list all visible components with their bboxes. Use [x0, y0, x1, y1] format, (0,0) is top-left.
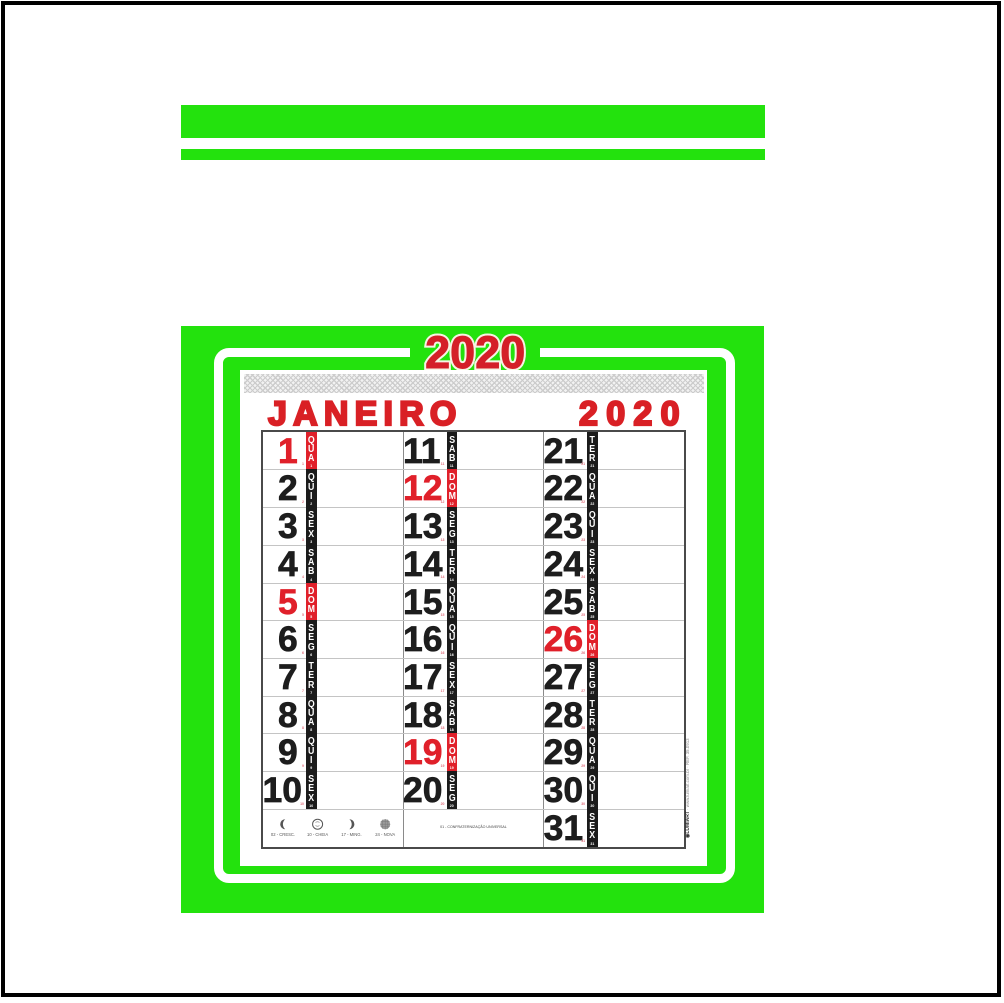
svg-text:24 - NOVA: 24 - NOVA [375, 832, 395, 837]
svg-text:02 - CRESC.: 02 - CRESC. [271, 832, 295, 837]
svg-text:17 - MING.: 17 - MING. [341, 832, 361, 837]
svg-text:10 - CHEIA: 10 - CHEIA [307, 832, 328, 837]
